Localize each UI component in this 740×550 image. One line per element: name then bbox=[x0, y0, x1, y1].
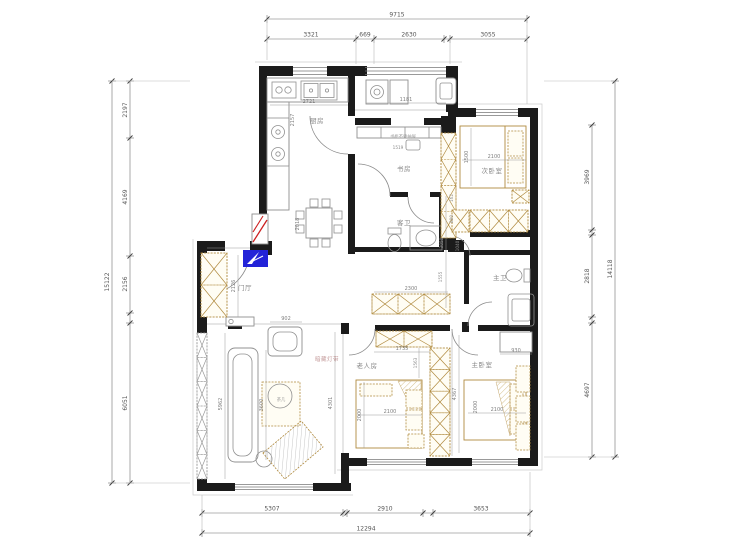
dimension-label: 5307 bbox=[264, 506, 279, 513]
dim-hall-depth: 2018 bbox=[295, 218, 301, 231]
dim-kitchen-counter: 2721 bbox=[303, 99, 316, 105]
dim-living-left: 5962 bbox=[218, 398, 224, 411]
dimension-label: 3055 bbox=[480, 32, 495, 39]
cabinet bbox=[516, 424, 530, 450]
dimension-label: 4697 bbox=[584, 382, 591, 397]
rug bbox=[263, 421, 323, 479]
dimension-label: 3653 bbox=[473, 506, 488, 513]
master-bath-fixtures bbox=[506, 269, 534, 326]
sofa bbox=[228, 348, 258, 462]
dim-bath-a: 162 bbox=[449, 194, 454, 202]
dimension-label: 15122 bbox=[104, 272, 111, 291]
dim-sofa: 3600 bbox=[259, 399, 265, 412]
dim-elder-side: 1563 bbox=[413, 357, 418, 368]
dimension-label: 3969 bbox=[584, 169, 591, 184]
dim-elder-bed-d: 2000 bbox=[357, 409, 363, 422]
master-bath-door-arc bbox=[468, 302, 492, 326]
dimension-label: 9715 bbox=[389, 12, 404, 19]
foyer-bench bbox=[226, 317, 254, 326]
dimension-label: 2910 bbox=[377, 506, 392, 513]
dim-armchair: 902 bbox=[281, 316, 291, 322]
living-room-furniture bbox=[228, 327, 323, 479]
dim-master-side: 4367 bbox=[452, 388, 458, 401]
pillow bbox=[360, 384, 392, 396]
elder-room-door-arc bbox=[349, 329, 375, 355]
dimension-label: 2630 bbox=[401, 32, 416, 39]
dim-kitchen-door: 1519 bbox=[393, 145, 404, 150]
dimension-label: 14118 bbox=[607, 259, 614, 278]
floor-plan-stage: 9715332166926303055151222197416921566051… bbox=[0, 0, 740, 550]
dim-balcony: 1181 bbox=[400, 97, 413, 103]
elder-room-wardrobe bbox=[376, 331, 432, 347]
toilet-tank bbox=[524, 269, 530, 282]
master-bedroom-door-arc bbox=[452, 329, 478, 355]
dim-bed2-d: 1500 bbox=[464, 151, 470, 164]
room-label-second-bedroom: 次卧室 bbox=[482, 166, 503, 175]
room-label-elder-room: 老人房 bbox=[357, 361, 378, 370]
dimension-label: 3321 bbox=[303, 32, 318, 39]
annotation-bookcase-note: 书柜不要抽屉 bbox=[390, 133, 416, 140]
room-label-kitchen: 厨房 bbox=[310, 116, 324, 125]
dim-kitchen-depth: 2157 bbox=[290, 114, 296, 127]
dim-living-right: 4301 bbox=[328, 397, 334, 410]
pillow bbox=[508, 131, 523, 156]
foyer-wardrobe bbox=[201, 253, 227, 317]
dim-master-desk: 930 bbox=[511, 348, 521, 354]
basin bbox=[416, 230, 436, 246]
dimension-label: 669 bbox=[359, 32, 371, 39]
room-label-foyer: 门厅 bbox=[238, 283, 252, 292]
nightstand bbox=[406, 390, 422, 408]
dimension-label: 2818 bbox=[584, 268, 591, 283]
dim-corridor-wardrobe: 2300 bbox=[405, 286, 418, 292]
study-door-arc bbox=[358, 164, 390, 196]
guest-bath-door-arc bbox=[408, 197, 434, 223]
washer bbox=[366, 80, 388, 104]
dimension-label: 2156 bbox=[122, 276, 129, 291]
room-label-guest-bath: 客卫 bbox=[397, 218, 411, 227]
floor-plan-canvas: 9715332166926303055151222197416921566051… bbox=[0, 0, 740, 550]
dining-table bbox=[306, 208, 332, 238]
dim-elder-wardrobe: 1735 bbox=[396, 346, 409, 352]
dimension-label: 4169 bbox=[122, 189, 129, 204]
dim-master-bed-w: 2100 bbox=[491, 407, 504, 413]
pillow bbox=[508, 158, 523, 183]
living-window-lattice bbox=[197, 333, 207, 479]
entry-arrow-marker bbox=[243, 250, 268, 267]
dim-bed2-w: 2100 bbox=[488, 154, 501, 160]
toilet-tank bbox=[388, 228, 401, 234]
annotation-concealed-light: 暗藏灯带 bbox=[315, 355, 339, 363]
extension-lines bbox=[112, 19, 615, 533]
toilet bbox=[506, 269, 522, 282]
bath-cabinet bbox=[512, 190, 529, 203]
dimension-label: 12294 bbox=[356, 526, 375, 533]
corridor-wardrobe bbox=[372, 294, 450, 314]
cabinet bbox=[516, 396, 530, 422]
cabinet bbox=[516, 366, 530, 392]
dim-corridor-a: 3050 bbox=[439, 237, 444, 248]
nightstand bbox=[406, 410, 422, 430]
second-bedroom-cabinet bbox=[452, 210, 469, 232]
divider-wardrobe bbox=[430, 348, 450, 456]
master-bedroom-furniture bbox=[464, 332, 532, 450]
dimension-label: 2197 bbox=[122, 102, 129, 117]
dining-set bbox=[296, 199, 342, 247]
furniture bbox=[226, 78, 534, 479]
dim-corridor-b: 1555 bbox=[438, 271, 443, 282]
room-label-study: 书房 bbox=[397, 164, 411, 173]
tea-table-rug bbox=[262, 382, 300, 426]
annotation-tea-table: 茶几 bbox=[277, 396, 286, 403]
dim-master-bed-d: 2000 bbox=[473, 401, 479, 414]
second-bedroom-wardrobe bbox=[470, 210, 528, 232]
dimension-label: 6051 bbox=[122, 395, 129, 410]
room-label-master-bath: 主卫 bbox=[493, 273, 507, 282]
dim-bath-c: 1040 bbox=[455, 240, 460, 251]
cabinet bbox=[408, 434, 424, 448]
dim-foyer-wardrobe: 2126 bbox=[231, 280, 237, 293]
dim-elder-bed-w: 2100 bbox=[384, 409, 397, 415]
dim-bath-b: 800 bbox=[449, 215, 454, 223]
room-label-master-bedroom: 主卧室 bbox=[472, 360, 493, 369]
